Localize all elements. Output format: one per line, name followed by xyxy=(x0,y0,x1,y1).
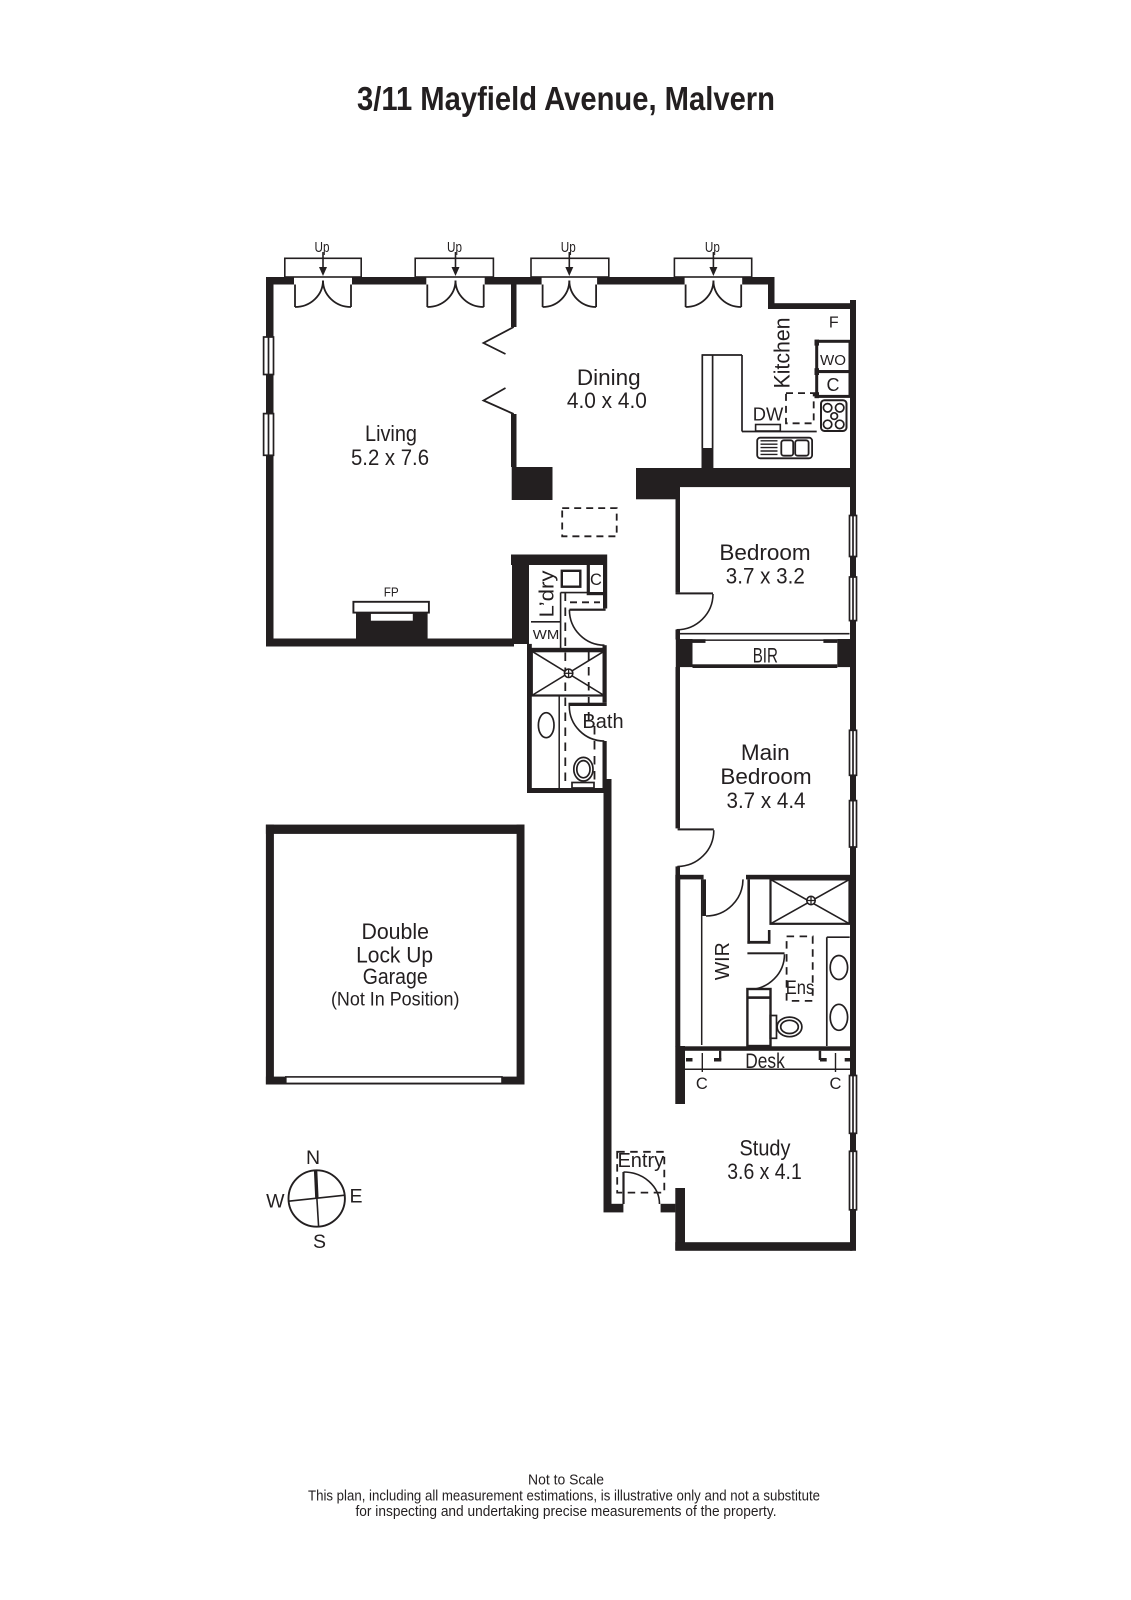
svg-text:Garage: Garage xyxy=(363,964,428,989)
svg-text:Not to Scale: Not to Scale xyxy=(528,1472,604,1489)
svg-text:WIR: WIR xyxy=(712,942,734,980)
svg-text:Up: Up xyxy=(705,239,720,256)
svg-text:3.7 x 4.4: 3.7 x 4.4 xyxy=(727,788,806,813)
svg-text:N: N xyxy=(306,1147,320,1169)
svg-text:Bedroom: Bedroom xyxy=(720,764,811,789)
svg-text:Dining: Dining xyxy=(577,365,641,390)
svg-text:Up: Up xyxy=(447,239,462,256)
svg-text:Entry: Entry xyxy=(617,1150,664,1172)
svg-text:FP: FP xyxy=(384,585,399,600)
svg-text:C: C xyxy=(827,375,840,395)
svg-text:Main: Main xyxy=(741,740,790,765)
svg-text:E: E xyxy=(349,1186,362,1208)
svg-text:L’dry: L’dry xyxy=(536,571,558,618)
svg-text:This plan, including all measu: This plan, including all measurement est… xyxy=(308,1488,820,1505)
svg-text:Living: Living xyxy=(365,421,417,446)
svg-text:4.0 x 4.0: 4.0 x 4.0 xyxy=(567,388,647,413)
svg-text:C: C xyxy=(590,571,602,589)
svg-text:Ens: Ens xyxy=(786,977,815,999)
svg-text:Bath: Bath xyxy=(582,711,623,733)
svg-text:WM: WM xyxy=(533,627,560,642)
svg-text:3.7 x 3.2: 3.7 x 3.2 xyxy=(726,564,805,589)
svg-text:(Not In Position): (Not In Position) xyxy=(331,989,460,1011)
svg-text:for inspecting and undertaking: for inspecting and undertaking precise m… xyxy=(356,1503,777,1520)
svg-text:3.6 x 4.1: 3.6 x 4.1 xyxy=(727,1159,802,1184)
svg-text:BIR: BIR xyxy=(753,645,778,668)
svg-text:C: C xyxy=(696,1075,708,1093)
svg-text:W: W xyxy=(266,1190,285,1212)
svg-text:Double: Double xyxy=(361,919,429,944)
svg-text:F: F xyxy=(829,315,839,332)
svg-text:Desk: Desk xyxy=(745,1050,785,1073)
svg-text:3/11 Mayfield Avenue, Malvern: 3/11 Mayfield Avenue, Malvern xyxy=(357,80,775,117)
svg-text:Study: Study xyxy=(740,1136,792,1161)
svg-text:Up: Up xyxy=(315,239,330,256)
svg-text:5.2 x 7.6: 5.2 x 7.6 xyxy=(351,445,429,470)
svg-text:C: C xyxy=(829,1075,841,1093)
svg-text:Up: Up xyxy=(561,239,576,256)
svg-text:DW: DW xyxy=(753,403,784,424)
svg-text:WO: WO xyxy=(820,352,846,369)
svg-text:S: S xyxy=(313,1231,326,1253)
svg-text:Bedroom: Bedroom xyxy=(719,540,810,565)
svg-text:Kitchen: Kitchen xyxy=(769,318,794,389)
